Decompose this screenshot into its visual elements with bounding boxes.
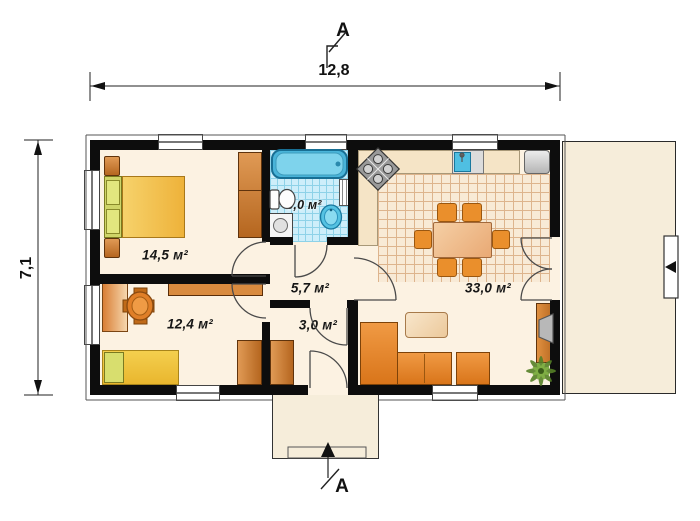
pillow [104,352,124,383]
wall-segment [270,237,293,245]
section-marker-label-bottom: A [335,476,349,498]
wardrobe-divider [239,190,261,191]
wardrobe [270,340,294,385]
pillow [106,209,120,234]
room-area-label: 14,5 м² [142,248,188,263]
dining-chair [437,203,457,222]
wall-segment [90,140,158,150]
dimension-width-label: 12,8 [318,62,349,80]
wall-segment [203,140,305,150]
wardrobe [237,340,262,385]
floor-plan: 14,5 м² 5,0 м² 12,4 м² 5,7 м² 3,0 м² 33,… [0,0,700,521]
wall-segment [348,300,358,385]
fridge [524,150,550,174]
room-area-label: 12,4 м² [167,317,213,332]
wall-segment [90,385,176,395]
pillow [106,180,120,205]
room-area-label: 33,0 м² [465,281,511,296]
kitchen-counter [358,150,520,174]
coffee-table [405,312,448,338]
wall-segment [550,140,560,237]
window [432,385,478,401]
double-bed [122,176,185,238]
dining-chair [437,258,457,277]
dimension-arrow-left [91,82,105,90]
sofa-seam [424,354,425,383]
window [84,285,100,345]
dimension-arrow-up [34,141,42,155]
corner-sofa [360,322,398,385]
wall-segment [347,140,452,150]
dining-chair [414,230,432,249]
window [452,134,498,150]
wall-segment [90,140,100,170]
dining-table [433,222,492,258]
armchair [456,352,490,385]
desk [102,281,128,332]
dimension-arrow-down [34,380,42,394]
section-marker-label-top: A [336,20,350,42]
dimension-height-label: 7,1 [18,257,36,279]
nightstand [104,156,120,176]
window [84,170,100,230]
window [176,385,220,401]
wardrobe [238,152,262,238]
nightstand [104,238,120,258]
window [158,134,203,150]
wall-shelf [168,283,263,296]
wall-segment [220,385,308,395]
dining-chair [462,203,482,222]
wall-segment [270,300,310,308]
wall-segment [550,300,560,395]
room-area-label: 3,0 м² [299,318,337,333]
wall-segment [348,150,358,242]
dining-chair [492,230,510,249]
wall-segment [90,274,270,284]
terrace [562,141,676,394]
dining-chair [462,258,482,277]
wall-segment [262,150,270,242]
kitchen-counter [358,150,378,246]
entrance-porch [272,394,379,459]
wall-segment [90,345,100,395]
room-area-label: 5,0 м² [286,198,321,212]
window [305,134,347,150]
room-area-label: 5,7 м² [291,281,329,296]
kitchen-sink-basin [454,152,471,172]
wall-segment [348,385,432,395]
washing-machine-drum [273,218,288,233]
dimension-arrow-right [545,82,559,90]
wall-segment [478,385,560,395]
wall-segment [262,322,270,385]
